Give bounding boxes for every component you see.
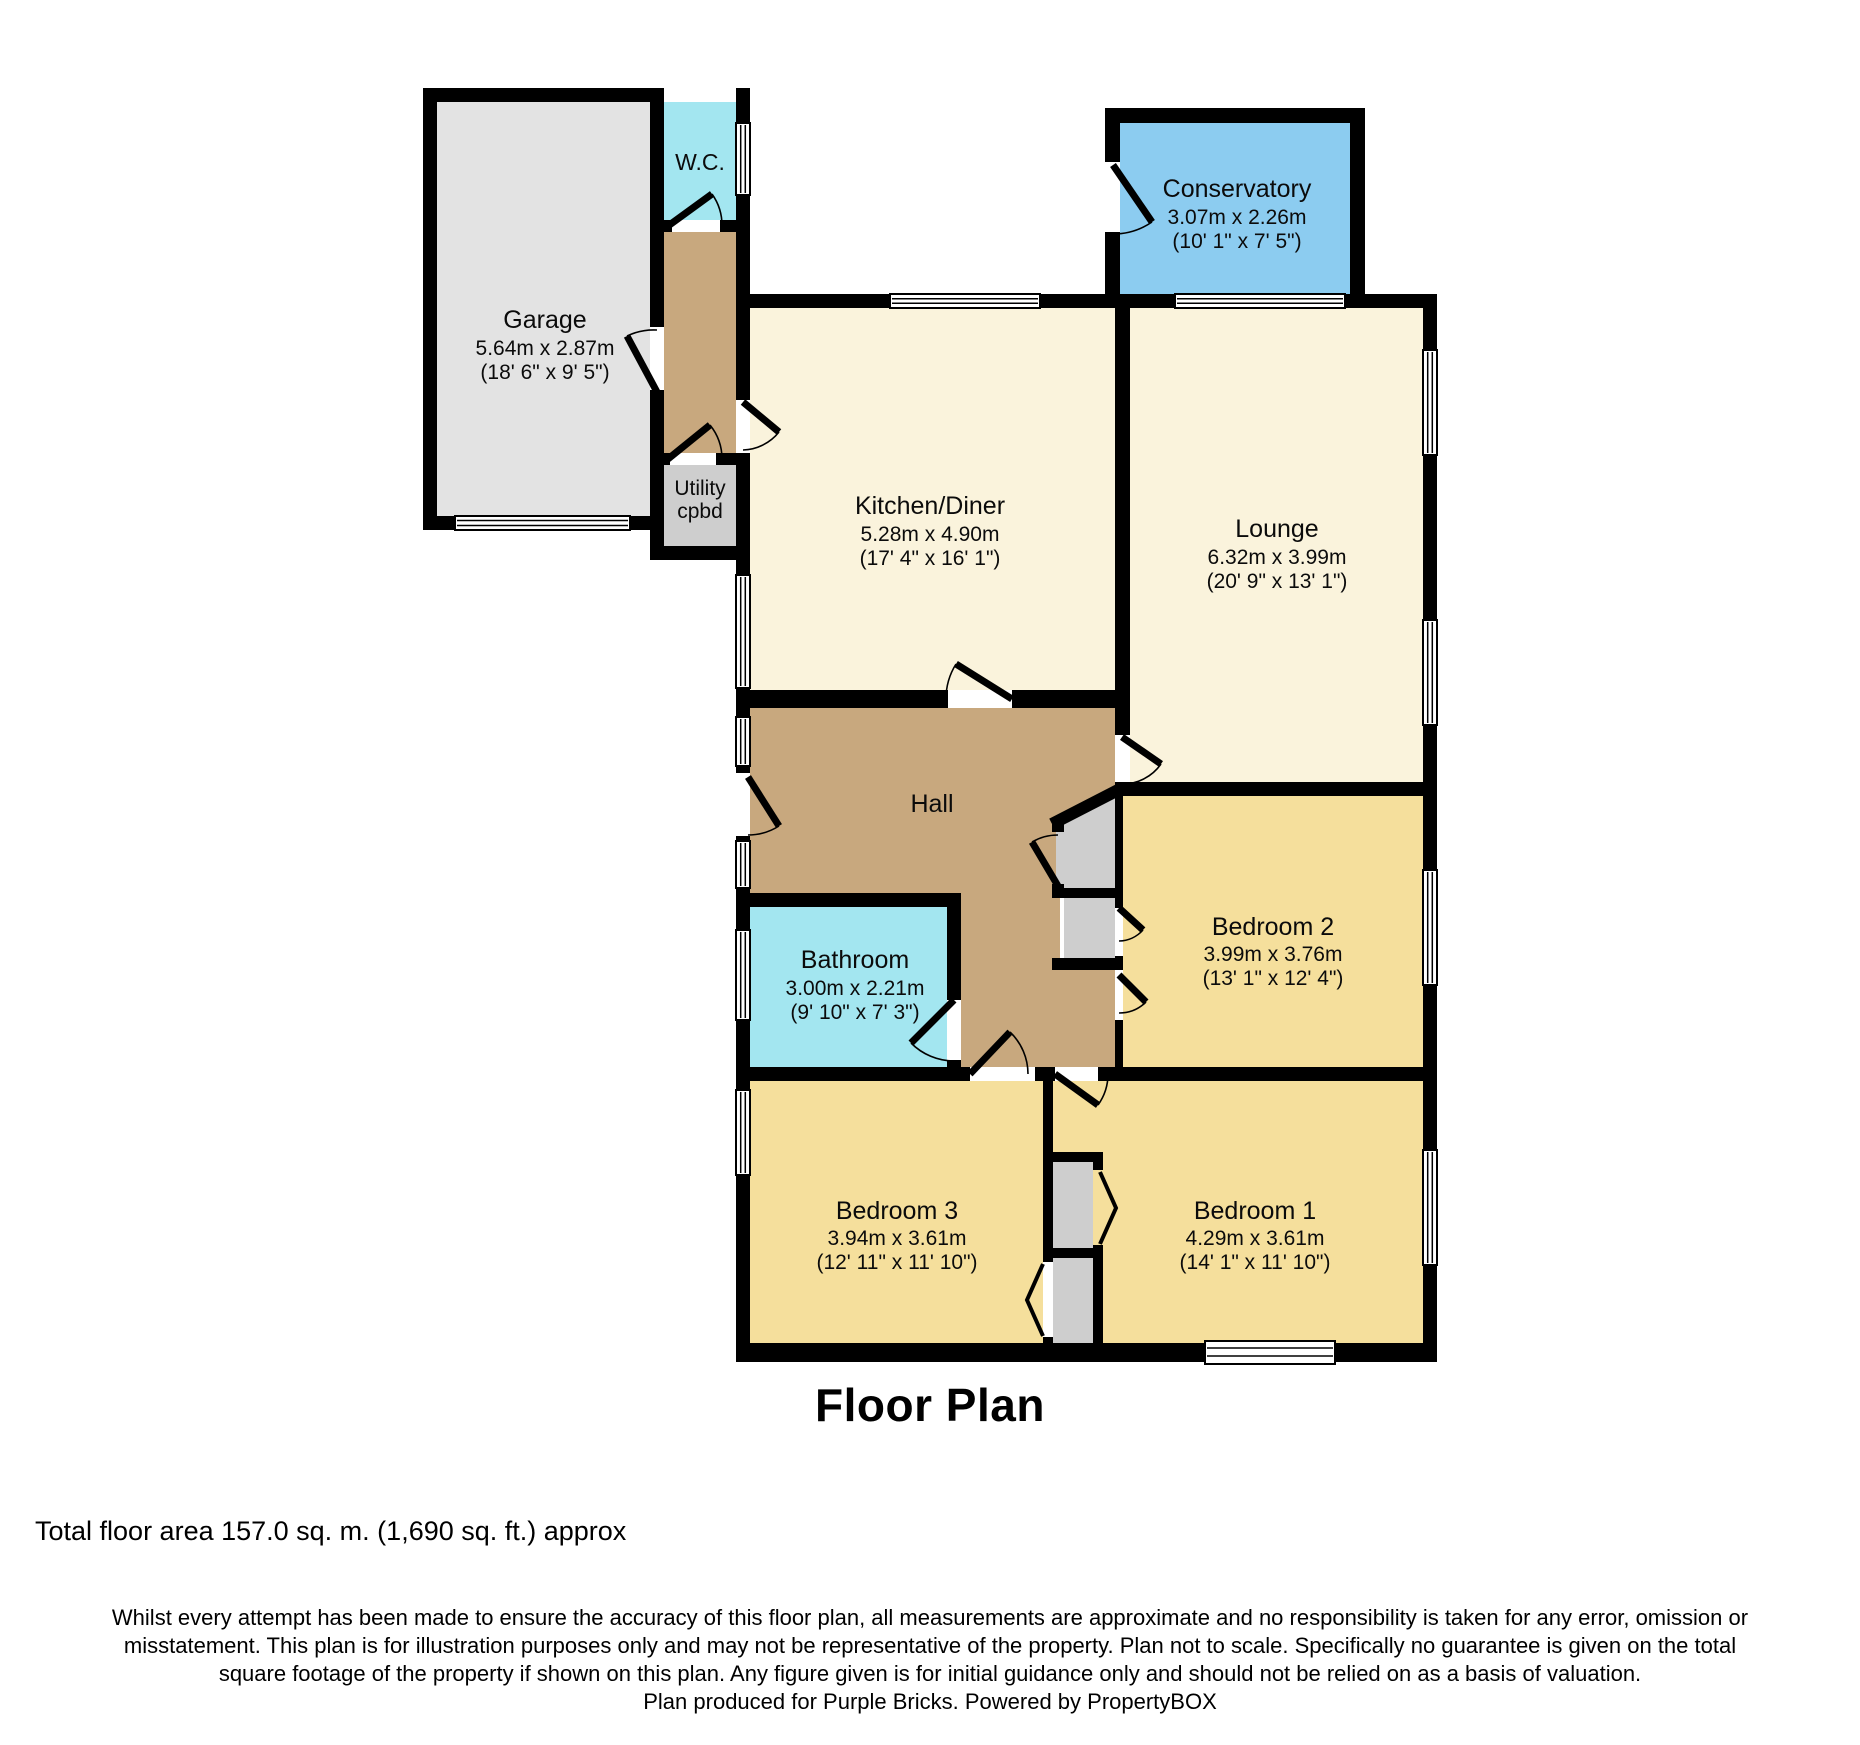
hall-window-upper xyxy=(736,717,750,766)
wall-segment xyxy=(736,1020,750,1090)
wall-segment xyxy=(750,1067,970,1081)
window-symbol xyxy=(736,841,750,888)
wall-segment xyxy=(1052,888,1123,898)
window-symbol xyxy=(1423,1150,1437,1265)
wall-segment xyxy=(736,88,750,123)
kitchen-dims-m: 5.28m x 4.90m xyxy=(861,523,1000,546)
bedroom1-cupboard-top xyxy=(1053,1162,1093,1248)
lounge-label: Lounge xyxy=(1235,515,1318,543)
bedroom2-dims-ft: (13' 1" x 12' 4") xyxy=(1203,967,1344,990)
floor-plan-canvas: Garage 5.64m x 2.87m (18' 6" x 9' 5") W.… xyxy=(0,0,1860,1745)
bathroom-dims-ft: (9' 10" x 7' 3") xyxy=(790,1001,919,1024)
wall-segment xyxy=(1105,108,1365,123)
window-symbol xyxy=(455,516,630,530)
wall-segment xyxy=(423,88,437,530)
wall-segment xyxy=(736,766,750,773)
entrance-corridor xyxy=(664,232,736,453)
bedroom1-window-side xyxy=(1423,1150,1437,1265)
disclaimer-line: Whilst every attempt has been made to en… xyxy=(0,1604,1860,1632)
wall-segment xyxy=(1335,1343,1437,1362)
wall-segment xyxy=(1043,1337,1053,1343)
bathroom-window xyxy=(736,930,750,1020)
utility-label-2: cpbd xyxy=(677,500,723,523)
bedroom2-label: Bedroom 2 xyxy=(1212,913,1334,941)
wall-segment xyxy=(423,516,455,530)
wall-segment xyxy=(1115,782,1423,796)
wall-segment xyxy=(947,893,961,1000)
wall-segment xyxy=(736,294,890,308)
garage-label: Garage xyxy=(503,306,586,334)
wc-window xyxy=(736,123,750,195)
hall-corridor-end xyxy=(1060,970,1115,1067)
window-symbol xyxy=(736,717,750,766)
bedroom2-window xyxy=(1423,870,1437,985)
disclaimer-line: square footage of the property if shown … xyxy=(0,1660,1860,1688)
wall-segment xyxy=(1105,108,1120,162)
wall-segment xyxy=(423,88,664,102)
wall-segment xyxy=(750,893,961,907)
wc-label: W.C. xyxy=(675,149,725,175)
window-symbol xyxy=(1423,350,1437,455)
window-symbol xyxy=(736,123,750,195)
wall-segment xyxy=(1098,1067,1423,1081)
disclaimer: Whilst every attempt has been made to en… xyxy=(0,1604,1860,1716)
wall-segment xyxy=(750,690,948,708)
window-symbol xyxy=(1175,294,1345,308)
window-symbol xyxy=(1423,870,1437,985)
wall-segment xyxy=(1423,294,1437,350)
wall-segment xyxy=(650,390,664,560)
bathroom-dims-m: 3.00m x 2.21m xyxy=(786,977,925,1000)
total-floor-area: Total floor area 157.0 sq. m. (1,690 sq.… xyxy=(35,1516,626,1547)
bedroom1-window-bottom xyxy=(1205,1341,1335,1364)
wall-segment xyxy=(716,453,736,465)
bedroom1-label: Bedroom 1 xyxy=(1194,1197,1316,1225)
wall-segment xyxy=(650,88,664,327)
wall-segment xyxy=(1115,786,1123,908)
wall-segment xyxy=(1012,690,1130,708)
wall-segment xyxy=(1043,1248,1103,1258)
wall-segment xyxy=(1043,1081,1053,1262)
kitchen-side-window xyxy=(736,575,750,688)
bedroom3-dims-m: 3.94m x 3.61m xyxy=(828,1227,967,1250)
bedroom3-cupboard xyxy=(1053,1258,1093,1343)
conservatory-dims-m: 3.07m x 2.26m xyxy=(1168,206,1307,229)
wall-segment xyxy=(1423,985,1437,1150)
wall-segment xyxy=(1093,1245,1103,1343)
window-symbol xyxy=(1205,1341,1335,1364)
wall-segment xyxy=(1350,108,1365,294)
wall-segment xyxy=(1052,958,1123,970)
window-symbol xyxy=(736,1090,750,1175)
window-symbol xyxy=(736,575,750,688)
plan-title: Floor Plan xyxy=(0,1378,1860,1432)
bedroom2-cupboard xyxy=(1064,898,1115,958)
bathroom-label: Bathroom xyxy=(801,946,909,974)
wall-segment xyxy=(1052,820,1064,832)
kitchen-label: Kitchen/Diner xyxy=(855,492,1005,520)
conservatory-patio-doors xyxy=(1175,294,1345,308)
disclaimer-line: Plan produced for Purple Bricks. Powered… xyxy=(0,1688,1860,1716)
kitchen-dims-ft: (17' 4" x 16' 1") xyxy=(860,547,1001,570)
bedroom3-dims-ft: (12' 11" x 11' 10") xyxy=(816,1251,977,1274)
bedroom2-dims-m: 3.99m x 3.76m xyxy=(1204,943,1343,966)
wall-segment xyxy=(736,888,750,930)
wall-segment xyxy=(736,453,750,575)
kitchen-window xyxy=(890,294,1040,308)
wall-segment xyxy=(1423,455,1437,620)
conservatory-label: Conservatory xyxy=(1163,175,1312,203)
wall-segment xyxy=(1423,725,1437,870)
garage-dims-m: 5.64m x 2.87m xyxy=(476,337,615,360)
lounge-dims-ft: (20' 9" x 13' 1") xyxy=(1207,570,1348,593)
wall-segment xyxy=(1115,308,1130,735)
hall-corridor xyxy=(961,893,1060,1067)
wall-segment xyxy=(1105,232,1120,294)
room-fills xyxy=(437,102,1423,1343)
conservatory-dims-ft: (10' 1" x 7' 5") xyxy=(1172,230,1301,253)
wall-segment xyxy=(1115,956,1123,970)
wall-segment xyxy=(736,1343,1205,1362)
wall-segment xyxy=(1040,294,1175,308)
wall-segment xyxy=(1035,1067,1055,1081)
window-symbol xyxy=(736,930,750,1020)
wall-segment xyxy=(1043,1152,1103,1162)
utility-label: Utility xyxy=(674,477,726,500)
window-symbol xyxy=(890,294,1040,308)
hall-window-lower xyxy=(736,841,750,888)
bedroom1-dims-m: 4.29m x 3.61m xyxy=(1186,1227,1325,1250)
disclaimer-line: misstatement. This plan is for illustrat… xyxy=(0,1632,1860,1660)
bedroom3-label: Bedroom 3 xyxy=(836,1197,958,1225)
garage-door-symbol xyxy=(455,516,630,530)
wall-segment xyxy=(1115,1020,1123,1067)
bedroom1-dims-ft: (14' 1" x 11' 10") xyxy=(1180,1251,1331,1274)
wall-segment xyxy=(650,546,750,560)
garage-dims-ft: (18' 6" x 9' 5") xyxy=(480,361,609,384)
lounge-window-lower xyxy=(1423,620,1437,725)
bedroom3-window xyxy=(736,1090,750,1175)
lounge-window-upper xyxy=(1423,350,1437,455)
hall-label: Hall xyxy=(910,790,953,818)
room-lounge xyxy=(1130,308,1423,782)
window-symbol xyxy=(1423,620,1437,725)
wall-segment xyxy=(736,1175,750,1362)
wall-segment xyxy=(736,688,750,717)
lounge-dims-m: 6.32m x 3.99m xyxy=(1208,546,1347,569)
